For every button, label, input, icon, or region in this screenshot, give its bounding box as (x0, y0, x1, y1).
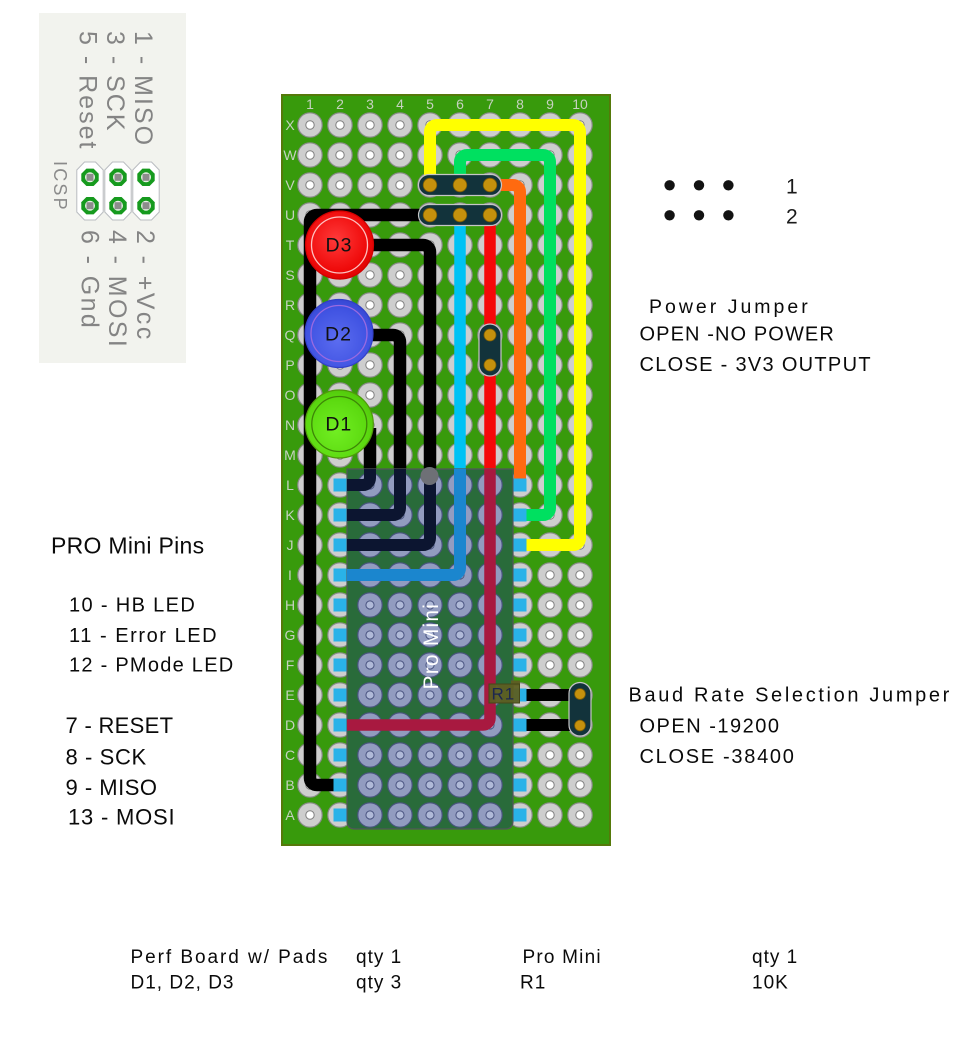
svg-text:D2: D2 (325, 324, 352, 346)
svg-text:Perf Board w/ Pads: Perf Board w/ Pads (131, 947, 330, 968)
svg-text:N: N (285, 417, 295, 433)
svg-text:D1, D2, D3: D1, D2, D3 (131, 973, 235, 994)
svg-text:8: 8 (516, 96, 524, 112)
svg-text:4 - MOSI: 4 - MOSI (103, 230, 131, 349)
svg-text:CLOSE - 3V3 OUTPUT: CLOSE - 3V3 OUTPUT (640, 354, 872, 376)
svg-text:7 - RESET: 7 - RESET (66, 713, 174, 738)
svg-text:10: 10 (572, 96, 588, 112)
svg-text:10 - HB LED: 10 - HB LED (69, 595, 196, 617)
svg-text:Pro Mini: Pro Mini (523, 947, 602, 968)
svg-text:X: X (285, 117, 295, 133)
svg-text:H: H (285, 597, 295, 613)
svg-text:Pro Mini: Pro Mini (420, 603, 443, 690)
svg-text:D: D (285, 717, 295, 733)
svg-text:4: 4 (396, 96, 404, 112)
svg-text:Baud Rate Selection Jumper: Baud Rate Selection Jumper (629, 685, 953, 707)
svg-text:I: I (288, 567, 292, 583)
svg-text:ICSP: ICSP (50, 161, 70, 212)
svg-text:2: 2 (786, 206, 798, 229)
svg-text:2 - +Vcc: 2 - +Vcc (131, 230, 159, 342)
svg-text:F: F (286, 657, 295, 673)
svg-text:6 - Gnd: 6 - Gnd (76, 230, 104, 330)
svg-text:E: E (285, 687, 294, 703)
svg-text:8 - SCK: 8 - SCK (66, 745, 147, 770)
svg-text:L: L (286, 477, 294, 493)
svg-text:5: 5 (426, 96, 434, 112)
svg-text:K: K (285, 507, 295, 523)
svg-text:13 - MOSI: 13 - MOSI (68, 805, 175, 830)
svg-text:U: U (285, 207, 295, 223)
svg-text:11 - Error LED: 11 - Error LED (69, 625, 218, 647)
svg-text:CLOSE -38400: CLOSE -38400 (640, 746, 796, 768)
svg-text:OPEN -NO POWER: OPEN -NO POWER (640, 324, 835, 346)
svg-text:T: T (286, 237, 295, 253)
svg-text:3 - SCK: 3 - SCK (101, 31, 129, 133)
svg-text:PRO Mini Pins: PRO Mini Pins (51, 533, 204, 559)
svg-text:J: J (287, 537, 294, 553)
svg-text:R: R (285, 297, 295, 313)
svg-text:10K: 10K (752, 973, 789, 994)
svg-text:R1: R1 (492, 685, 516, 704)
svg-text:3: 3 (366, 96, 374, 112)
svg-text:6: 6 (456, 96, 464, 112)
svg-text:7: 7 (486, 96, 494, 112)
svg-text:B: B (285, 777, 294, 793)
svg-text:9: 9 (546, 96, 554, 112)
svg-text:M: M (284, 447, 296, 463)
svg-text:R1: R1 (520, 973, 546, 994)
svg-text:1: 1 (786, 176, 798, 199)
svg-text:1 - MISO: 1 - MISO (129, 31, 157, 147)
svg-text:Power Jumper: Power Jumper (649, 296, 811, 318)
svg-text:S: S (285, 267, 294, 283)
svg-text:O: O (285, 387, 296, 403)
svg-text:2: 2 (336, 96, 344, 112)
svg-text:qty 3: qty 3 (356, 973, 402, 994)
svg-text:1: 1 (306, 96, 314, 112)
svg-text:9 - MISO: 9 - MISO (66, 775, 158, 800)
svg-text:G: G (285, 627, 296, 643)
svg-text:V: V (285, 177, 295, 193)
svg-text:A: A (285, 807, 295, 823)
svg-text:P: P (285, 357, 294, 373)
svg-text:C: C (285, 747, 295, 763)
svg-text:W: W (283, 147, 297, 163)
svg-text:D1: D1 (325, 414, 352, 436)
svg-text:D3: D3 (326, 235, 353, 257)
svg-text:OPEN -19200: OPEN -19200 (640, 716, 781, 738)
svg-text:12 - PMode LED: 12 - PMode LED (69, 655, 235, 677)
svg-text:qty 1: qty 1 (752, 947, 798, 968)
svg-text:Q: Q (285, 327, 296, 343)
svg-text:qty 1: qty 1 (356, 947, 402, 968)
svg-text:5 - Reset: 5 - Reset (74, 31, 102, 150)
